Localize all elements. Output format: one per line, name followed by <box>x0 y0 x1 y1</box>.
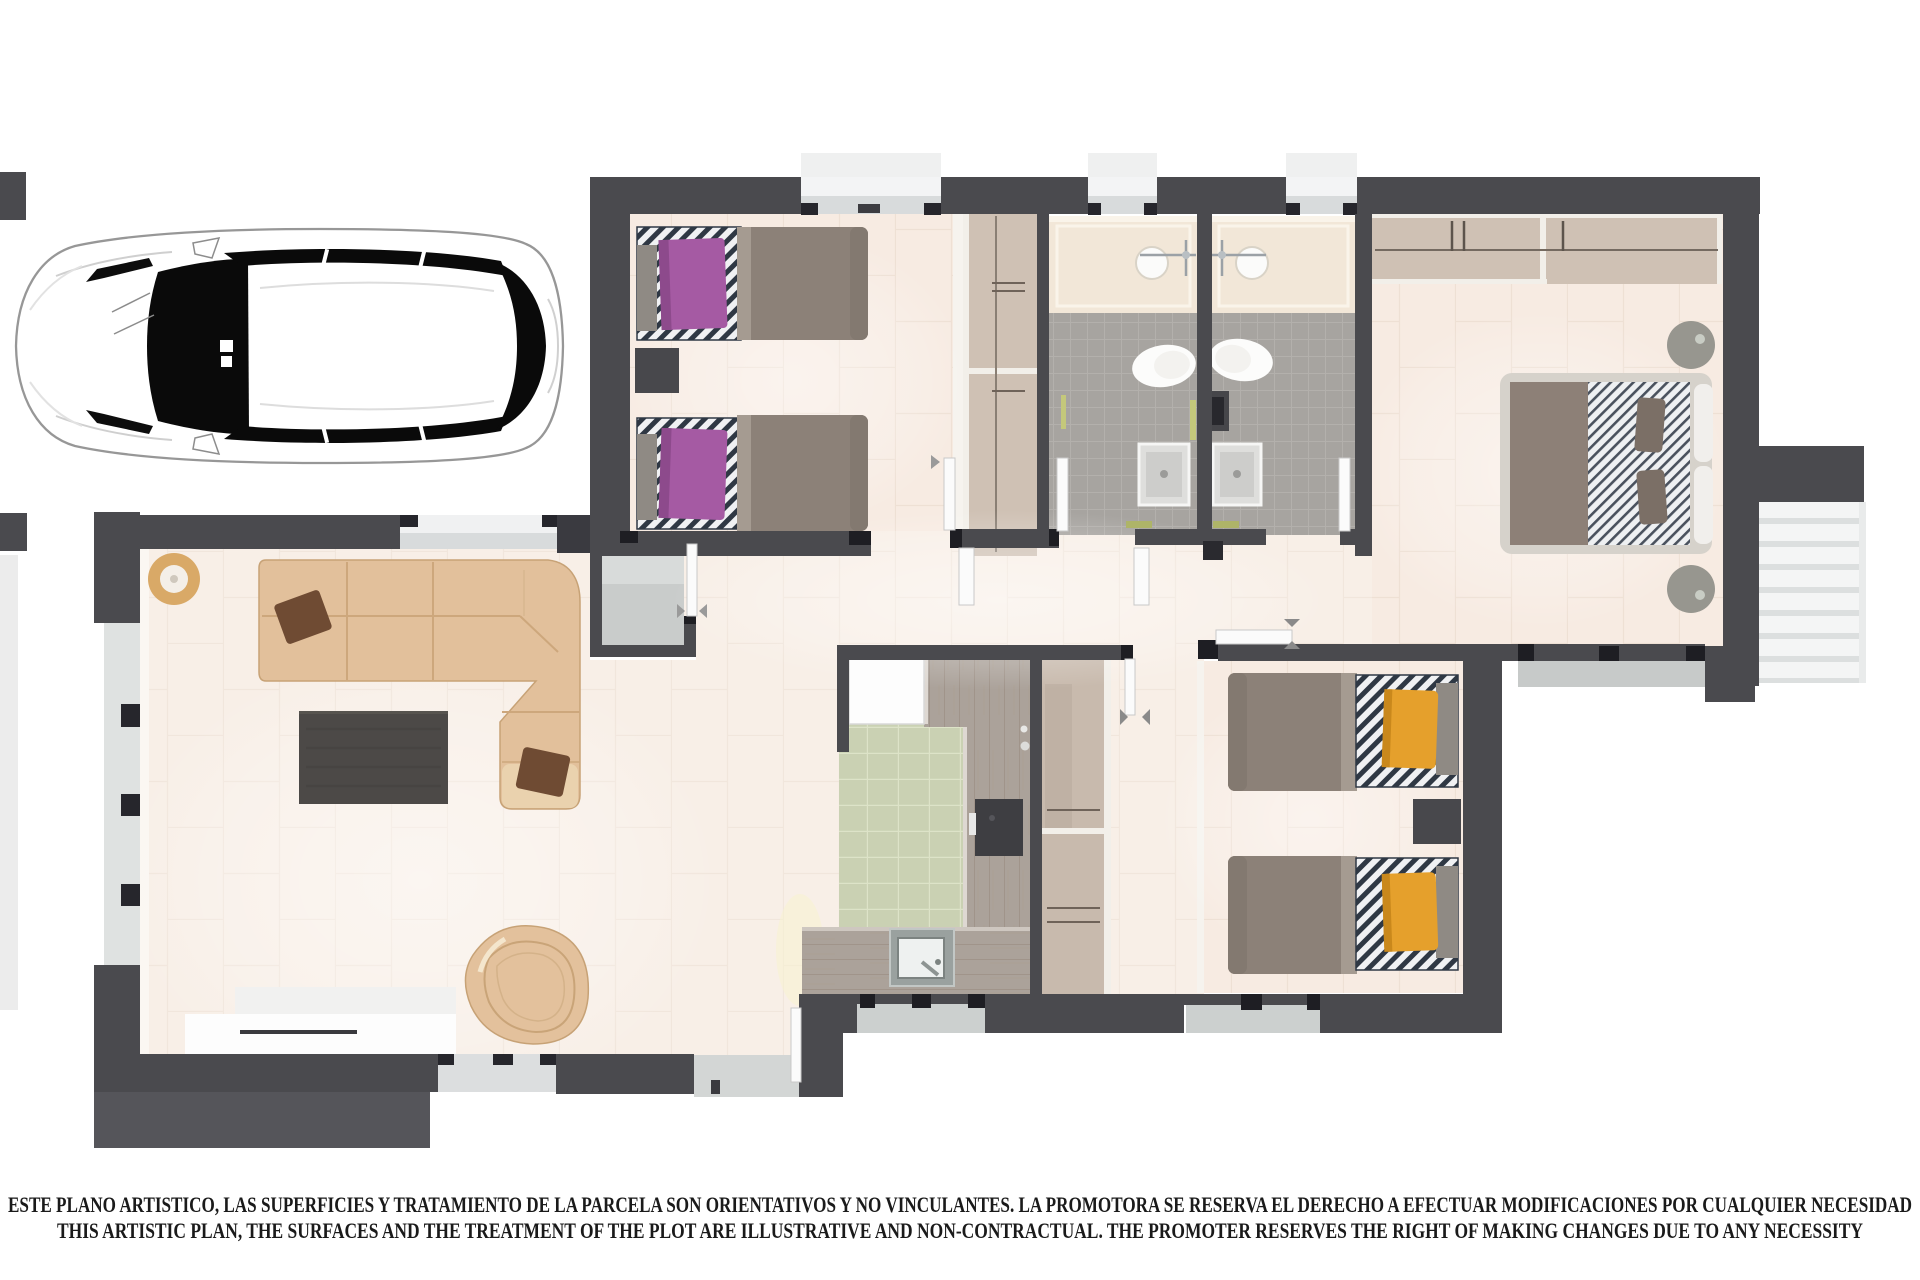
svg-text:ESTE PLANO ARTISTICO, LAS SUPE: ESTE PLANO ARTISTICO, LAS SUPERFICIES Y … <box>8 1192 1912 1217</box>
svg-text:THIS ARTISTIC PLAN, THE SURFAC: THIS ARTISTIC PLAN, THE SURFACES AND THE… <box>57 1218 1863 1243</box>
